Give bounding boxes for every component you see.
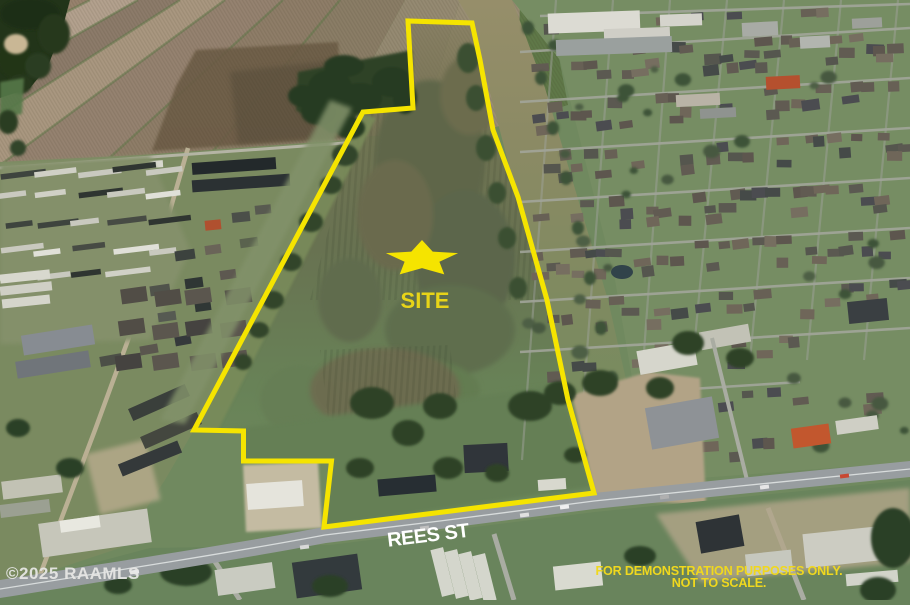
svg-text:©2025 RAAMLS: ©2025 RAAMLS [6, 564, 140, 583]
svg-text:NOT TO SCALE.: NOT TO SCALE. [672, 576, 766, 590]
svg-text:SITE: SITE [401, 288, 450, 313]
